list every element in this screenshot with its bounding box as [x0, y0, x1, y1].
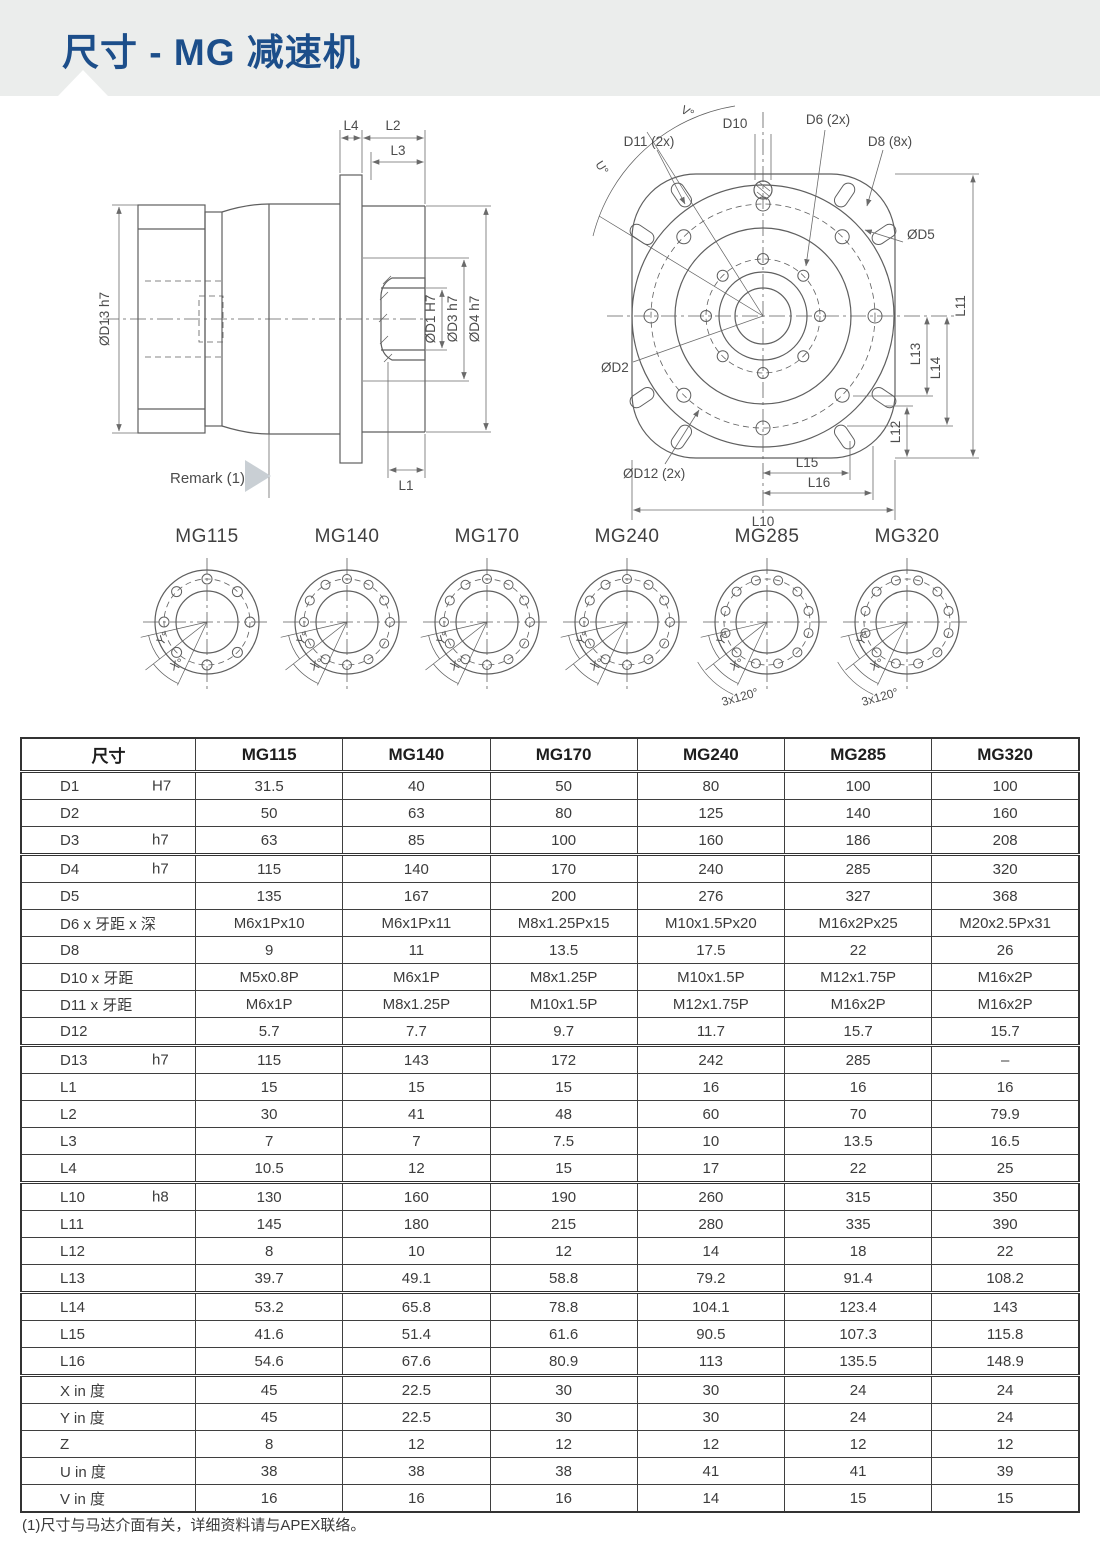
table-row: L1654.667.680.9113135.5148.9 [21, 1348, 1079, 1376]
flange-diagram-mg320: MG320 Y° X° 3x120° [837, 526, 977, 720]
dim-value: 8 [196, 1238, 343, 1265]
dim-value: 208 [932, 827, 1079, 855]
dim-value: 24 [785, 1404, 932, 1431]
row-label: D10 x 牙距 [60, 970, 133, 987]
dim-label-l16: L16 [808, 475, 831, 490]
dim-value: 15 [932, 1485, 1079, 1513]
dim-value: 14 [637, 1238, 784, 1265]
row-header: Y in 度 [21, 1404, 196, 1431]
dim-label-d11: D11 (2x) [624, 134, 675, 149]
dim-label-d10: D10 [723, 116, 748, 131]
table-row: L2304148607079.9 [21, 1101, 1079, 1128]
dim-value: 15 [490, 1155, 637, 1183]
flange-title: MG320 [837, 526, 977, 550]
table-row: Z81212121212 [21, 1431, 1079, 1458]
dim-value: 10 [637, 1128, 784, 1155]
dim-value: 22 [785, 1155, 932, 1183]
dim-value: 63 [343, 800, 490, 827]
dim-value: 80.9 [490, 1348, 637, 1376]
column-header: 尺寸 [21, 738, 196, 772]
table-row: D891113.517.52226 [21, 937, 1079, 964]
side-view-drawing: L4 L2 L3 L1 ØD13 h7 ØD1 H7 ØD3 h7 ØD4 h7… [95, 100, 565, 520]
dim-value: 38 [343, 1458, 490, 1485]
corner-slot-icon [832, 423, 857, 452]
dim-label-l2: L2 [385, 118, 400, 133]
dim-value: 60 [637, 1101, 784, 1128]
bolt-hole-icon [445, 596, 454, 605]
column-header: MG285 [785, 738, 932, 772]
bolt-hole-icon [933, 587, 942, 596]
dim-value: M8x1.25Px15 [490, 910, 637, 937]
dim-value: 17.5 [637, 937, 784, 964]
table-row: V in 度161616141515 [21, 1485, 1079, 1513]
dim-value: 135 [196, 883, 343, 910]
dim-value: 12 [490, 1431, 637, 1458]
row-header: V in 度 [21, 1485, 196, 1513]
dim-value: M6x1Px10 [196, 910, 343, 937]
dim-value: 390 [932, 1211, 1079, 1238]
dim-label-d2: ØD2 [601, 360, 629, 375]
dim-value: 9.7 [490, 1018, 637, 1046]
dim-value: 50 [196, 800, 343, 827]
dim-value: M5x0.8P [196, 964, 343, 991]
dim-value: 115 [196, 1046, 343, 1074]
row-label: D11 x 牙距 [60, 997, 132, 1014]
row-header: D1H7 [21, 772, 196, 800]
dim-value: 13.5 [490, 937, 637, 964]
dim-value: 148.9 [932, 1348, 1079, 1376]
dim-value: 8 [196, 1431, 343, 1458]
bolt-hole-icon [601, 580, 610, 589]
dim-value: 40 [343, 772, 490, 800]
dim-value: 41.6 [196, 1321, 343, 1348]
row-tolerance: h7 [152, 861, 169, 878]
dim-value: 24 [785, 1376, 932, 1404]
dim-value: M8x1.25P [343, 991, 490, 1018]
row-label: D2 [60, 805, 79, 822]
bolt-hole-icon [305, 596, 314, 605]
row-label: D6 x 牙距 x 深 [60, 916, 156, 933]
dim-label-l3: L3 [390, 143, 405, 158]
remark-arrow-icon [245, 460, 271, 492]
dim-value: 115 [196, 855, 343, 883]
dim-value: 16 [932, 1074, 1079, 1101]
dim-value: 30 [490, 1404, 637, 1431]
dim-label-d1: ØD1 H7 [423, 295, 438, 344]
flange-title: MG115 [137, 526, 277, 550]
dim-value: 190 [490, 1183, 637, 1211]
table-row: D10 x 牙距M5x0.8PM6x1PM8x1.25PM10x1.5PM12x… [21, 964, 1079, 991]
row-label: D8 [60, 942, 79, 959]
dim-value: 30 [490, 1376, 637, 1404]
angle-label-3x120: 3x120° [720, 685, 760, 709]
row-label: L1 [60, 1079, 77, 1096]
dim-value: 16 [343, 1485, 490, 1513]
dim-value: 240 [637, 855, 784, 883]
dim-value: 15 [785, 1485, 932, 1513]
dim-value: 368 [932, 883, 1079, 910]
bolt-hole-icon [944, 606, 953, 615]
bolt-hole-icon [380, 596, 389, 605]
dim-value: M20x2.5Px31 [932, 910, 1079, 937]
row-label: D13 [60, 1052, 88, 1069]
table-row: D4h7115140170240285320 [21, 855, 1079, 883]
header-triangle-decoration [58, 70, 108, 96]
dim-label-l13: L13 [908, 343, 923, 366]
row-header: D10 x 牙距 [21, 964, 196, 991]
dim-value: 12 [785, 1431, 932, 1458]
dim-value: 31.5 [196, 772, 343, 800]
dim-value: 200 [490, 883, 637, 910]
table-row: D3h76385100160186208 [21, 827, 1079, 855]
row-label: L4 [60, 1160, 77, 1177]
table-row: L3777.51013.516.5 [21, 1128, 1079, 1155]
dim-value: 320 [932, 855, 1079, 883]
dim-value: 15.7 [932, 1018, 1079, 1046]
row-label: D12 [60, 1023, 88, 1040]
dim-value: 26 [932, 937, 1079, 964]
row-header: X in 度 [21, 1376, 196, 1404]
dim-label-d4: ØD4 h7 [467, 296, 482, 343]
bolt-hole-icon [835, 388, 849, 402]
row-header: D3h7 [21, 827, 196, 855]
dim-value: 107.3 [785, 1321, 932, 1348]
dim-value: 63 [196, 827, 343, 855]
dim-label-l1: L1 [398, 478, 413, 493]
dim-value: 30 [637, 1404, 784, 1431]
row-label: X in 度 [60, 1383, 105, 1400]
dim-value: 260 [637, 1183, 784, 1211]
bolt-hole-icon [872, 587, 881, 596]
row-header: L13 [21, 1265, 196, 1293]
dim-value: 13.5 [785, 1128, 932, 1155]
dim-value: 130 [196, 1183, 343, 1211]
dim-value: 160 [932, 800, 1079, 827]
dim-value: M16x2Px25 [785, 910, 932, 937]
dim-label-l4: L4 [343, 118, 359, 133]
flange-diagram-mg170: MG170 Y° X° [417, 526, 557, 720]
bolt-hole-icon [732, 587, 741, 596]
dim-value: 285 [785, 1046, 932, 1074]
dim-value: 90.5 [637, 1321, 784, 1348]
dim-value: 160 [637, 827, 784, 855]
dim-value: M16x2P [932, 964, 1079, 991]
row-label: D3 [60, 832, 79, 849]
dim-label-l15: L15 [796, 455, 819, 470]
dim-value: 25 [932, 1155, 1079, 1183]
dim-value: 30 [196, 1101, 343, 1128]
row-header: L12 [21, 1238, 196, 1265]
column-header: MG320 [932, 738, 1079, 772]
table-row: X in 度4522.530302424 [21, 1376, 1079, 1404]
dim-value: 22 [785, 937, 932, 964]
row-label: V in 度 [60, 1491, 105, 1508]
flange-title: MG240 [557, 526, 697, 550]
table-body: D1H731.5405080100100D2506380125140160D3h… [21, 772, 1079, 1513]
dim-value: 285 [785, 855, 932, 883]
dim-value: 78.8 [490, 1293, 637, 1321]
dim-value: 327 [785, 883, 932, 910]
row-header: L4 [21, 1155, 196, 1183]
dim-label-d12: ØD12 (2x) [623, 466, 685, 481]
table-row: L1453.265.878.8104.1123.4143 [21, 1293, 1079, 1321]
dim-value: 12 [490, 1238, 637, 1265]
dim-value: 22 [932, 1238, 1079, 1265]
footnote: (1)尺寸与马达介面有关，详细资料请与APEX联络。 [22, 1514, 365, 1535]
dim-value: 14 [637, 1485, 784, 1513]
dim-value: 12 [343, 1431, 490, 1458]
dim-value: 17 [637, 1155, 784, 1183]
dim-value: 24 [932, 1404, 1079, 1431]
row-label: L16 [60, 1353, 85, 1370]
dim-value: 38 [196, 1458, 343, 1485]
bolt-hole-icon [861, 606, 870, 615]
table-row: L1151515161616 [21, 1074, 1079, 1101]
dim-value: M6x1P [343, 964, 490, 991]
dim-value: 5.7 [196, 1018, 343, 1046]
row-header: U in 度 [21, 1458, 196, 1485]
flange-drawing: Y° X° [277, 550, 417, 715]
bolt-hole-icon [321, 580, 330, 589]
bolt-hole-icon [914, 659, 923, 668]
dim-value: 145 [196, 1211, 343, 1238]
dim-value: M12x1.75P [637, 991, 784, 1018]
dim-value: 280 [637, 1211, 784, 1238]
dim-value: 143 [343, 1046, 490, 1074]
dim-value: 15 [490, 1074, 637, 1101]
row-header: L1 [21, 1074, 196, 1101]
row-label: D5 [60, 888, 79, 905]
page-title: 尺寸 - MG 减速机 [62, 22, 361, 76]
dim-value: 15.7 [785, 1018, 932, 1046]
dim-label-d6: D6 (2x) [806, 112, 850, 127]
dim-value: 22.5 [343, 1376, 490, 1404]
dim-value: 16 [785, 1074, 932, 1101]
dim-value: 39 [932, 1458, 1079, 1485]
dim-label-l12: L12 [888, 421, 903, 444]
row-label: L13 [60, 1270, 85, 1287]
dim-value: 172 [490, 1046, 637, 1074]
row-header: D12 [21, 1018, 196, 1046]
table-header-row: 尺寸MG115MG140MG170MG240MG285MG320 [21, 738, 1079, 772]
dim-value: 276 [637, 883, 784, 910]
flange-drawing: Y° X° 3x120° [837, 550, 977, 715]
table-row: L11145180215280335390 [21, 1211, 1079, 1238]
row-label: D1 [60, 778, 79, 795]
dim-value: 350 [932, 1183, 1079, 1211]
row-header: L2 [21, 1101, 196, 1128]
dim-value: 12 [637, 1431, 784, 1458]
table-row: L1281012141822 [21, 1238, 1079, 1265]
flange-drawing: Y° X° [417, 550, 557, 715]
technical-drawings: L4 L2 L3 L1 ØD13 h7 ØD1 H7 ØD3 h7 ØD4 h7… [0, 96, 1100, 736]
row-header: D11 x 牙距 [21, 991, 196, 1018]
dim-value: 113 [637, 1348, 784, 1376]
dim-value: 45 [196, 1404, 343, 1431]
dim-value: 41 [343, 1101, 490, 1128]
flange-face-outline [593, 106, 957, 516]
dim-value: 12 [343, 1155, 490, 1183]
row-header: L14 [21, 1293, 196, 1321]
dim-value: 38 [490, 1458, 637, 1485]
table-row: D2506380125140160 [21, 800, 1079, 827]
dim-value: 16 [196, 1485, 343, 1513]
dim-value: 9 [196, 937, 343, 964]
bolt-hole-icon [677, 230, 691, 244]
dim-value: 100 [785, 772, 932, 800]
flange-size-diagrams: MG115 Y° X° MG140 [137, 526, 975, 720]
dim-value: 54.6 [196, 1348, 343, 1376]
dim-value: M6x1Px11 [343, 910, 490, 937]
dim-value: 41 [785, 1458, 932, 1485]
dim-value: 10.5 [196, 1155, 343, 1183]
dim-value: 7 [196, 1128, 343, 1155]
row-label: L11 [60, 1216, 84, 1233]
dim-value: M10x1.5P [490, 991, 637, 1018]
row-tolerance: h8 [152, 1189, 169, 1206]
flange-drawing: Y° X° [137, 550, 277, 715]
row-header: D4h7 [21, 855, 196, 883]
corner-slot-icon [669, 423, 694, 452]
row-tolerance: h7 [152, 832, 169, 849]
bolt-hole-icon [793, 587, 802, 596]
bolt-hole-icon [721, 606, 730, 615]
flange-title: MG285 [697, 526, 837, 550]
dim-value: 135.5 [785, 1348, 932, 1376]
dim-value: 50 [490, 772, 637, 800]
table-row: D11 x 牙距M6x1PM8x1.25PM10x1.5PM12x1.75PM1… [21, 991, 1079, 1018]
dim-value: 167 [343, 883, 490, 910]
dim-value: 242 [637, 1046, 784, 1074]
dim-value: 123.4 [785, 1293, 932, 1321]
dimension-table: 尺寸MG115MG140MG170MG240MG285MG320 D1H731.… [20, 737, 1080, 1513]
dim-value: 180 [343, 1211, 490, 1238]
dim-value: 85 [343, 827, 490, 855]
dim-value: 108.2 [932, 1265, 1079, 1293]
dim-value: 11 [343, 937, 490, 964]
dim-value: 16 [490, 1485, 637, 1513]
dim-value: – [932, 1046, 1079, 1074]
row-label: Y in 度 [60, 1410, 105, 1427]
table-row: D1H731.5405080100100 [21, 772, 1079, 800]
dim-value: 16.5 [932, 1128, 1079, 1155]
table-row: Y in 度4522.530302424 [21, 1404, 1079, 1431]
row-label: L10 [60, 1189, 85, 1206]
bolt-hole-icon [172, 587, 182, 597]
dim-value: 100 [490, 827, 637, 855]
row-label: L14 [60, 1299, 85, 1316]
table-row: D6 x 牙距 x 深M6x1Px10M6x1Px11M8x1.25Px15M1… [21, 910, 1079, 937]
dim-value: M16x2P [932, 991, 1079, 1018]
row-header: L11 [21, 1211, 196, 1238]
dim-value: M16x2P [785, 991, 932, 1018]
dim-value: 80 [637, 772, 784, 800]
dim-label-d8: D8 (8x) [868, 134, 912, 149]
dim-label-u-angle: U° [592, 158, 611, 177]
dim-label-l14: L14 [928, 356, 943, 379]
row-label: L2 [60, 1106, 77, 1123]
table-row: L10h8130160190260315350 [21, 1183, 1079, 1211]
row-header: L3 [21, 1128, 196, 1155]
dim-value: 79.2 [637, 1265, 784, 1293]
flange-drawing: Y° X° [557, 550, 697, 715]
row-header: Z [21, 1431, 196, 1458]
dim-label-l11: L11 [953, 295, 968, 317]
dim-value: 48 [490, 1101, 637, 1128]
datasheet-page: 尺寸 - MG 减速机 [0, 0, 1100, 1558]
flange-title: MG170 [417, 526, 557, 550]
bolt-hole-icon [520, 596, 529, 605]
dim-value: 7.7 [343, 1018, 490, 1046]
dim-value: M10x1.5P [637, 964, 784, 991]
dim-value: 125 [637, 800, 784, 827]
table-row: D125.77.79.711.715.715.7 [21, 1018, 1079, 1046]
dim-value: 18 [785, 1238, 932, 1265]
dim-value: 91.4 [785, 1265, 932, 1293]
dim-value: 186 [785, 827, 932, 855]
table-row: U in 度383838414139 [21, 1458, 1079, 1485]
row-label: L3 [60, 1133, 77, 1150]
dim-value: 215 [490, 1211, 637, 1238]
table-row: L1541.651.461.690.5107.3115.8 [21, 1321, 1079, 1348]
row-label: L12 [60, 1243, 85, 1260]
angle-label-3x120: 3x120° [860, 685, 900, 709]
page-header-band: 尺寸 - MG 减速机 [0, 0, 1100, 96]
dim-value: 53.2 [196, 1293, 343, 1321]
column-header: MG115 [196, 738, 343, 772]
flange-diagram-mg240: MG240 Y° X° [557, 526, 697, 720]
dim-value: 79.9 [932, 1101, 1079, 1128]
corner-slot-icon [669, 181, 694, 210]
dim-value: 51.4 [343, 1321, 490, 1348]
dim-value: M8x1.25P [490, 964, 637, 991]
dim-value: 140 [785, 800, 932, 827]
dim-value: 315 [785, 1183, 932, 1211]
dim-value: 100 [932, 772, 1079, 800]
row-header: D13h7 [21, 1046, 196, 1074]
flange-diagram-mg140: MG140 Y° X° [277, 526, 417, 720]
row-label: U in 度 [60, 1464, 106, 1481]
dim-value: 335 [785, 1211, 932, 1238]
dim-value: 45 [196, 1376, 343, 1404]
dim-value: 41 [637, 1458, 784, 1485]
flange-diagram-mg115: MG115 Y° X° [137, 526, 277, 720]
dim-value: M6x1P [196, 991, 343, 1018]
dim-value: 104.1 [637, 1293, 784, 1321]
corner-slot-icon [832, 181, 857, 210]
dim-value: 140 [343, 855, 490, 883]
dim-value: 24 [932, 1376, 1079, 1404]
bolt-hole-icon [774, 659, 783, 668]
flange-diagram-mg285: MG285 Y° X° 3x120° [697, 526, 837, 720]
dim-value: 80 [490, 800, 637, 827]
dim-label-d13: ØD13 h7 [97, 292, 112, 346]
row-header: L10h8 [21, 1183, 196, 1211]
column-header: MG140 [343, 738, 490, 772]
dim-value: 61.6 [490, 1321, 637, 1348]
remark-label: Remark (1) [170, 470, 245, 487]
dim-value: 30 [637, 1376, 784, 1404]
bolt-hole-icon [751, 659, 760, 668]
dim-value: M10x1.5Px20 [637, 910, 784, 937]
dim-value: 16 [637, 1074, 784, 1101]
bolt-hole-icon [232, 587, 242, 597]
dim-value: 11.7 [637, 1018, 784, 1046]
front-view-drawing: D10 D6 (2x) D8 (8x) D11 (2x) V° U° ØD5 Ø… [585, 96, 1095, 534]
dim-value: 22.5 [343, 1404, 490, 1431]
dim-value: 70 [785, 1101, 932, 1128]
row-header: D5 [21, 883, 196, 910]
